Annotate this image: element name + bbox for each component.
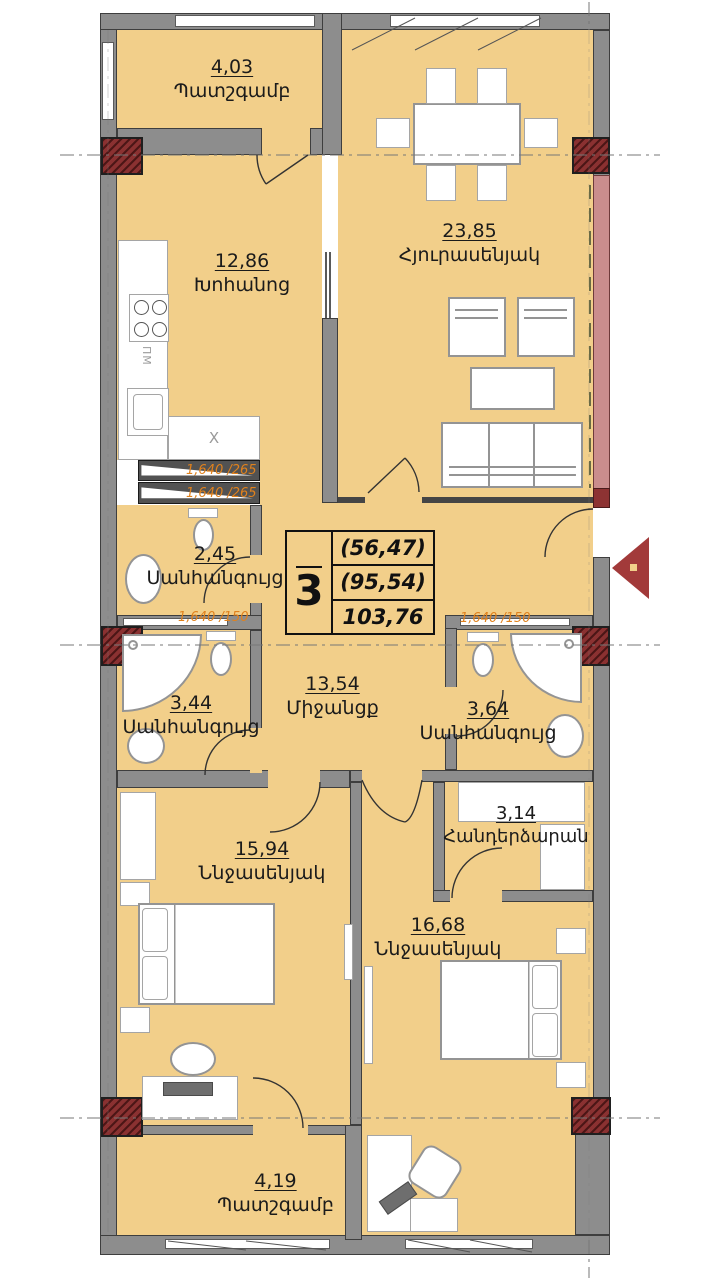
stamp-total-area: 103,76 [333,601,433,633]
stamp-living-area: (56,47) [333,532,433,566]
dining-chair [426,68,456,104]
nightstand [120,1007,150,1033]
room-area: 16,68 [348,914,528,938]
room-label-bath-left: 3,44 Սանհանգույց [103,692,279,740]
wall-living-hall-b [422,497,593,503]
stove-burner [134,300,149,315]
room-name: Ննջասենյակ [172,862,352,886]
shower-drain [128,640,138,650]
room-area: 3,64 [398,698,578,722]
stamp-rooms-count: 3 [294,570,323,612]
toilet-bowl [210,642,232,676]
window-balcony-left [102,42,114,120]
wall-bedroom-balcony [117,1125,360,1135]
room-area: 15,94 [172,838,352,862]
dishwasher-label: ПМ [140,346,153,366]
room-area: 3,14 [428,803,604,826]
room-name: Սանհանգույց [398,722,578,746]
floor-plan: ПМ X [0,0,720,1280]
room-name: Հանդերձարան [428,826,604,849]
sofa [441,422,583,488]
pillow [142,908,168,952]
doorway-living-hall [365,497,422,503]
room-name: Ննջասենյակ [348,938,528,962]
room-name: Պատշգամբ [147,80,317,104]
room-label-dressing: 3,14 Հանդերձարան [428,803,604,848]
nightstand [556,928,586,954]
vent-label: 1,640 /265 [186,463,257,478]
stove-burner [134,322,149,337]
room-name: Սանհանգույց [103,716,279,740]
room-label-living: 23,85 Հյուրասենյակ [377,220,562,268]
column [101,137,143,175]
coffee-table [470,367,555,410]
floor-hall-strip [362,782,433,902]
facade-glass-wall [593,175,610,490]
toilet-bowl [472,643,494,677]
dining-chair [524,118,558,148]
column [101,1097,143,1137]
dining-chair [477,68,507,104]
kitchen-sink-basin [133,394,163,430]
toilet-tank [206,631,236,641]
room-label-bedroom-left: 15,94 Ննջասենյակ [172,838,352,886]
stamp-rooms-cell: 3 [287,532,333,633]
doorway-hall-strip [362,770,422,782]
room-area: 12,86 [157,250,327,274]
toilet-tank [467,632,499,642]
doorway-dressing [450,890,502,902]
wall-living-hall-a [338,497,365,503]
dining-chair [426,165,456,201]
room-label-balcony-bottom: 4,19 Պատշգամբ [183,1170,368,1218]
pillow [532,1013,558,1057]
dining-chair [376,118,410,148]
room-label-kitchen: 12,86 Խոհանոց [157,250,327,298]
window-balcony-top [175,15,315,27]
column [572,137,610,174]
wall-balcony-living [322,13,342,155]
room-area: 4,03 [147,56,317,80]
wall-kitchen-living [322,318,338,503]
nightstand [556,1062,586,1088]
pillow [142,956,168,1000]
wall-bedroom-right-corner [575,1130,610,1235]
doorway-balcony-bottom [253,1125,308,1135]
room-area: 23,85 [377,220,562,244]
room-name: Պատշգամբ [183,1194,368,1218]
room-name: Սանհանգույց [125,567,305,591]
window-bedroom-bottom [405,1239,533,1249]
desk [410,1198,458,1232]
stamp-areas: (56,47) (95,54) 103,76 [333,532,433,633]
stove-burner [152,322,167,337]
radiator [364,966,373,1064]
counter-mark: X [168,416,260,460]
armchair [517,297,575,357]
armchair [448,297,506,357]
entrance-arrow-dot [630,564,637,571]
dining-chair [477,165,507,201]
dining-table [413,103,521,165]
room-area: 4,19 [183,1170,368,1194]
shower-drain [564,639,574,649]
column [571,1097,611,1135]
entry-door-gap [593,508,610,557]
toilet-tank [188,508,218,518]
computer-monitor [163,1082,213,1096]
facade-wall-end [593,488,610,508]
room-name: Խոհանոց [157,274,327,298]
floor-entry-corridor [445,503,593,615]
pillow [532,965,558,1009]
vent-label: 1,640 /150 [460,611,531,626]
room-label-bedroom-right: 16,68 Ննջասենյակ [348,914,528,962]
room-label-balcony-top: 4,03 Պատշգամբ [147,56,317,104]
doorway-balcony-top [262,128,310,155]
vent-label: 1,640 /150 [178,610,249,625]
stamp-sub-area: (95,54) [333,566,433,600]
vent-label: 1,640 /265 [186,486,257,501]
room-label-bath-small: 2,45 Սանհանգույց [125,543,305,591]
room-name: Հյուրասենյակ [377,244,562,268]
room-label-bath-right: 3,64 Սանհանգույց [398,698,578,746]
office-chair [170,1042,216,1076]
apartment-stamp: 3 (56,47) (95,54) 103,76 [285,530,435,635]
stove-burner [152,300,167,315]
floor-kitchen-corridor [260,460,322,505]
room-area: 3,44 [103,692,279,716]
doorway-bedroom-left [268,770,320,788]
window-living-top [390,15,540,27]
window-balcony-bottom [165,1239,330,1249]
room-area: 2,45 [125,543,305,567]
wardrobe [120,792,156,880]
